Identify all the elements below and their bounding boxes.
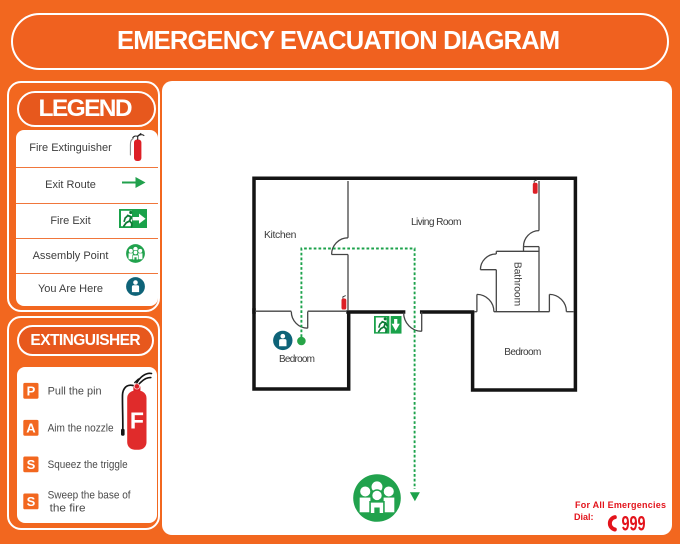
svg-text:Living Room: Living Room bbox=[411, 217, 462, 228]
svg-text:Kitchen: Kitchen bbox=[264, 230, 297, 241]
svg-text:Bedroom: Bedroom bbox=[279, 354, 315, 365]
svg-text:999: 999 bbox=[622, 511, 646, 536]
svg-text:Bathroom: Bathroom bbox=[512, 262, 523, 306]
svg-text:Dial:: Dial: bbox=[574, 512, 594, 522]
svg-text:For All Emergencies: For All Emergencies bbox=[575, 500, 666, 510]
svg-text:Bedroom: Bedroom bbox=[504, 347, 541, 358]
